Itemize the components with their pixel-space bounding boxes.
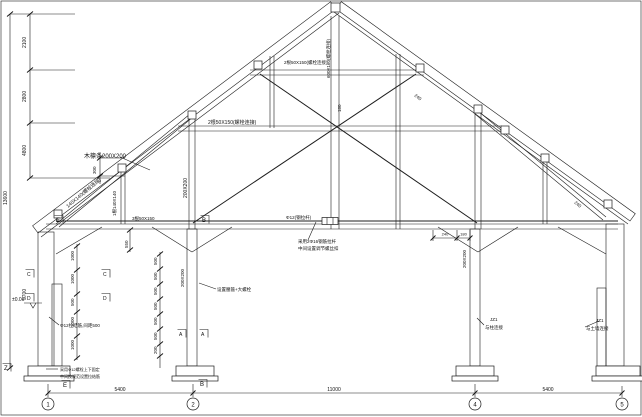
marker-e-top: E bbox=[56, 218, 60, 224]
base-note-1: 采用Φ12螺栓上下固定 bbox=[60, 366, 100, 372]
collar2-label: 2根50X150(螺栓连接) bbox=[208, 119, 257, 126]
dim-5400-right: 5400 bbox=[542, 387, 553, 393]
ridge-block bbox=[331, 3, 340, 12]
dim-11000: 11000 bbox=[327, 387, 341, 393]
post-left-label: 1根140X140 bbox=[111, 190, 118, 216]
wall-dim-500: 500 bbox=[70, 298, 75, 306]
axis-circles bbox=[42, 398, 628, 410]
roof-band-right bbox=[336, 2, 635, 221]
col2-note: 设置腰箍+大螺栓 bbox=[217, 286, 252, 293]
purlin-blocks bbox=[54, 3, 612, 218]
rwall-note-conn: 与土墙连接 bbox=[586, 325, 609, 332]
marker-a-right: A bbox=[201, 332, 205, 338]
wall-tie-note: Φ12拉结筋,间距500 bbox=[60, 322, 100, 329]
marker-c-inner: C bbox=[103, 272, 107, 278]
chord-label: 3根50X150 bbox=[132, 215, 155, 222]
level-plusminus-0: ±0.00 bbox=[12, 297, 25, 303]
dimension-ticks bbox=[7, 12, 625, 396]
col4-note-conn: 与柱连接 bbox=[485, 324, 503, 331]
footings bbox=[24, 366, 642, 381]
leader-lines bbox=[24, 157, 599, 369]
marker-b-bottom: B bbox=[200, 382, 204, 388]
marker-e-bottom: E bbox=[63, 383, 67, 389]
col2-dim-500a: 500 bbox=[153, 257, 158, 265]
marker-b-top: B bbox=[202, 218, 206, 224]
tierod-note-1: 采用2Φ16钢筋拉杆 bbox=[298, 238, 337, 245]
level-marker-symbol bbox=[24, 303, 42, 308]
collar1-label: 2根50X150(螺栓连接) bbox=[284, 59, 328, 66]
diag-label-240: 240 bbox=[413, 93, 422, 102]
rafter-left-inner bbox=[41, 13, 339, 237]
turnbuckle bbox=[322, 218, 338, 225]
tierod-note-2: 中间设置调节螺丝扣 bbox=[298, 245, 339, 252]
wall-dim-1000b: 1000 bbox=[70, 273, 75, 284]
col4-dim-240: 240 bbox=[442, 232, 449, 237]
strut-right-dim-240: 240 bbox=[573, 200, 582, 209]
dim-total-13600: 13600 bbox=[3, 191, 9, 205]
base-note-2: 中间按规范设置拉结筋 bbox=[60, 373, 100, 379]
dim-seg-4800: 4800 bbox=[22, 145, 28, 156]
col2-label: 200X200 bbox=[180, 268, 185, 287]
roof bbox=[33, 2, 636, 237]
marker-z: Z bbox=[4, 366, 8, 372]
king-dim-180: 180 bbox=[337, 104, 342, 112]
left-wall bbox=[38, 232, 54, 366]
col4-label: 200X200 bbox=[462, 249, 467, 268]
dim-300: 300 bbox=[92, 166, 97, 174]
col2-dim-500d: 500 bbox=[153, 302, 158, 310]
annotations: 2100280048001360030057001000100050010001… bbox=[3, 37, 625, 409]
purlin-note: 木檩条200X200 bbox=[84, 152, 127, 160]
col2-dim-200: 200 bbox=[153, 346, 158, 354]
drawing-sheet: 2100280048001360030057001000100050010001… bbox=[0, 0, 642, 417]
dim-seg-2100: 2100 bbox=[22, 37, 28, 48]
wall-dim-1000d: 1000 bbox=[70, 339, 75, 350]
dim-seg-2800: 2800 bbox=[22, 91, 28, 102]
col2-dim-500b: 500 bbox=[153, 272, 158, 280]
right-wall bbox=[606, 224, 624, 366]
wall-dim-1000a: 1000 bbox=[70, 250, 75, 261]
dim-5400-left: 5400 bbox=[114, 387, 125, 393]
dimension-lines bbox=[10, 14, 622, 397]
marker-d-inner: D bbox=[103, 296, 107, 302]
dim-550: 550 bbox=[124, 240, 129, 248]
kingpost-label: 600X160(螺栓连接) bbox=[325, 38, 332, 78]
structural-section-drawing: 2100280048001360030057001000100050010001… bbox=[0, 0, 642, 417]
col2-dim-500c: 500 bbox=[153, 287, 158, 295]
queen-left-label: 200X200 bbox=[183, 178, 189, 198]
col2-dim-500f: 500 bbox=[153, 332, 158, 340]
marker-d-wall: D bbox=[27, 296, 31, 302]
col4-note-jz1: JZ1 bbox=[490, 317, 498, 322]
column-axis-4 bbox=[470, 229, 480, 366]
col2-dim-500e: 500 bbox=[153, 317, 158, 325]
rwall-note-jz1: JZ1 bbox=[596, 318, 604, 323]
marker-a-left: A bbox=[179, 332, 183, 338]
marker-c-wall: C bbox=[27, 272, 31, 278]
col4-dim-180: 180 bbox=[460, 232, 467, 237]
tierod-label: Φ12(钢拉杆) bbox=[286, 214, 312, 221]
